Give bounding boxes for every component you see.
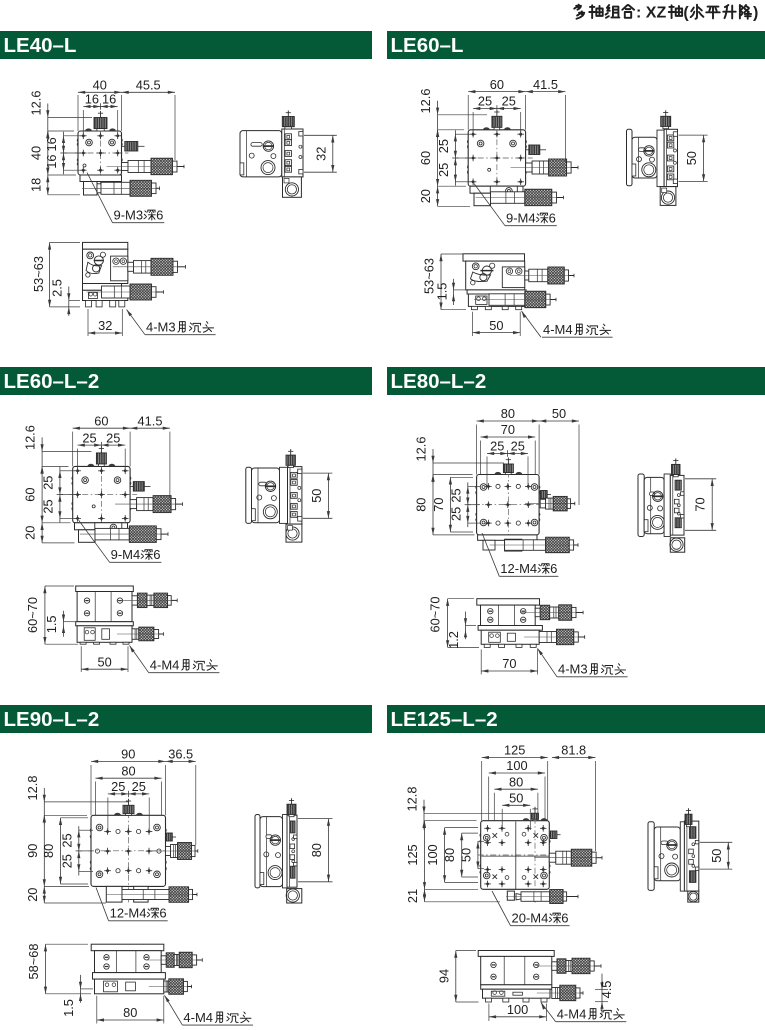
svg-text:90: 90 <box>121 747 135 762</box>
svg-text:12-M4: 12-M4 <box>500 561 537 576</box>
svg-text:70: 70 <box>501 422 515 437</box>
svg-text:2.5: 2.5 <box>50 279 65 297</box>
svg-text:100: 100 <box>425 844 440 865</box>
svg-text:1.5: 1.5 <box>61 999 76 1017</box>
svg-text:41.5: 41.5 <box>138 413 163 428</box>
svg-text:21: 21 <box>405 889 420 903</box>
svg-text:50: 50 <box>489 318 503 333</box>
svg-text:80: 80 <box>501 406 515 421</box>
svg-text:70: 70 <box>502 656 516 671</box>
svg-text:32: 32 <box>98 318 112 333</box>
svg-text:6: 6 <box>549 211 556 226</box>
svg-text:40: 40 <box>93 78 107 93</box>
svg-text:4-M3: 4-M3 <box>558 662 588 677</box>
svg-text:20: 20 <box>418 189 433 203</box>
svg-text:25: 25 <box>436 163 451 177</box>
svg-text:6: 6 <box>159 906 166 921</box>
svg-text:125: 125 <box>405 844 420 865</box>
svg-text:6: 6 <box>550 561 557 576</box>
svg-text:4-M4: 4-M4 <box>183 1010 213 1025</box>
svg-text:LE40–L: LE40–L <box>4 34 77 57</box>
svg-text:9-M4: 9-M4 <box>506 211 536 226</box>
svg-text:25: 25 <box>82 430 96 445</box>
svg-text:80: 80 <box>509 774 523 789</box>
svg-text:58~68: 58~68 <box>26 944 41 980</box>
svg-text:(: ( <box>683 5 689 22</box>
svg-text:50: 50 <box>97 654 111 669</box>
svg-text:25: 25 <box>106 430 120 445</box>
svg-text:80: 80 <box>309 843 324 857</box>
svg-text:100: 100 <box>507 1002 528 1017</box>
svg-text:): ) <box>753 5 758 22</box>
svg-text:20-M4: 20-M4 <box>512 911 549 926</box>
svg-text:1.5: 1.5 <box>44 616 59 634</box>
svg-text:80: 80 <box>41 844 56 858</box>
svg-text:9-M4: 9-M4 <box>111 547 141 562</box>
svg-text:25: 25 <box>132 779 146 794</box>
svg-text:LE60–L: LE60–L <box>391 34 464 57</box>
svg-text:25: 25 <box>490 439 504 454</box>
svg-text:60: 60 <box>23 487 38 501</box>
svg-text:94: 94 <box>436 969 451 983</box>
svg-text:4.5: 4.5 <box>599 981 614 999</box>
svg-text:41.5: 41.5 <box>533 77 558 92</box>
svg-text:12.6: 12.6 <box>29 91 44 116</box>
svg-text:40: 40 <box>28 146 43 160</box>
svg-text:50: 50 <box>552 406 566 421</box>
svg-text:60: 60 <box>94 413 108 428</box>
svg-text:6: 6 <box>153 547 160 562</box>
svg-text:9-M3: 9-M3 <box>114 208 144 223</box>
svg-text:16: 16 <box>102 92 116 107</box>
svg-text:25: 25 <box>448 507 463 521</box>
svg-text:50: 50 <box>309 489 324 503</box>
svg-text:6: 6 <box>156 208 163 223</box>
svg-text:45.5: 45.5 <box>136 78 161 93</box>
svg-text:4-M4: 4-M4 <box>557 1007 587 1022</box>
svg-text:20: 20 <box>23 526 38 540</box>
svg-text:12.6: 12.6 <box>418 89 433 114</box>
svg-text:125: 125 <box>504 743 525 758</box>
svg-text:50: 50 <box>709 849 724 863</box>
svg-text:36.5: 36.5 <box>168 747 193 762</box>
svg-text:25: 25 <box>111 779 125 794</box>
svg-text:4-M4: 4-M4 <box>543 322 573 337</box>
svg-text:80: 80 <box>414 498 429 512</box>
svg-text:12.8: 12.8 <box>405 787 420 812</box>
svg-text:16: 16 <box>44 154 59 168</box>
svg-text:1.2: 1.2 <box>446 631 461 649</box>
svg-text:4-M3: 4-M3 <box>146 320 176 335</box>
svg-text:18: 18 <box>28 178 43 192</box>
svg-text:25: 25 <box>436 139 451 153</box>
svg-text:50: 50 <box>458 848 473 862</box>
svg-text:25: 25 <box>59 854 74 868</box>
svg-text:80: 80 <box>442 848 457 862</box>
svg-text:16: 16 <box>44 137 59 151</box>
svg-text:50: 50 <box>509 791 523 806</box>
svg-text:LE80–L–2: LE80–L–2 <box>391 370 487 393</box>
svg-text:LE90–L–2: LE90–L–2 <box>4 708 100 731</box>
svg-text:16: 16 <box>85 92 99 107</box>
svg-text:4-M4: 4-M4 <box>150 658 180 673</box>
svg-text:100: 100 <box>506 758 527 773</box>
svg-text:70: 70 <box>693 497 708 511</box>
svg-text:32: 32 <box>313 147 328 161</box>
svg-text:12.6: 12.6 <box>23 425 38 450</box>
svg-text:25: 25 <box>511 439 525 454</box>
svg-text:60: 60 <box>490 77 504 92</box>
svg-text:6: 6 <box>561 911 568 926</box>
svg-text:25: 25 <box>40 499 55 513</box>
svg-text:90: 90 <box>25 844 40 858</box>
svg-text:53~63: 53~63 <box>31 256 46 292</box>
svg-text:1.5: 1.5 <box>435 283 450 301</box>
svg-text:25: 25 <box>448 488 463 502</box>
svg-text:LE60–L–2: LE60–L–2 <box>4 370 100 393</box>
svg-text:60~70: 60~70 <box>25 597 40 633</box>
svg-text:25: 25 <box>40 476 55 490</box>
svg-text:80: 80 <box>121 763 135 778</box>
svg-text:LE125–L–2: LE125–L–2 <box>391 708 498 731</box>
svg-text:81.8: 81.8 <box>561 743 586 758</box>
svg-text:: XZ: : XZ <box>636 5 666 22</box>
svg-text:70: 70 <box>431 497 446 511</box>
svg-text:12-M4: 12-M4 <box>110 906 147 921</box>
svg-text:25: 25 <box>502 94 516 109</box>
svg-text:25: 25 <box>478 94 492 109</box>
svg-text:60: 60 <box>418 151 433 165</box>
svg-text:12.6: 12.6 <box>414 437 429 462</box>
svg-text:12.8: 12.8 <box>25 776 40 801</box>
svg-text:80: 80 <box>123 1005 137 1020</box>
svg-text:50: 50 <box>684 151 699 165</box>
svg-text:60~70: 60~70 <box>428 597 443 633</box>
svg-text:20: 20 <box>25 888 40 902</box>
svg-text:25: 25 <box>59 833 74 847</box>
